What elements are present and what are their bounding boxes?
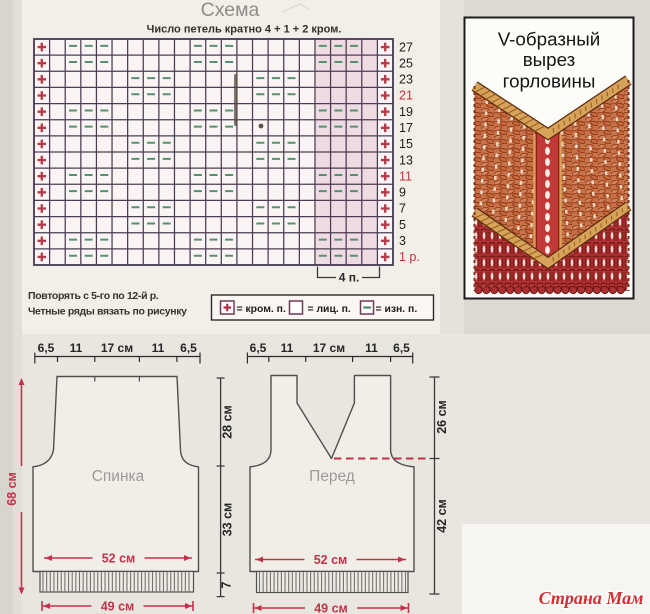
- svg-text:23: 23: [399, 73, 413, 87]
- svg-text:Четные ряды вязать по рисунку: Четные ряды вязать по рисунку: [28, 306, 187, 318]
- svg-text:15: 15: [399, 137, 413, 151]
- svg-text:вырез: вырез: [523, 49, 576, 70]
- svg-text:Страна Мам: Страна Мам: [539, 588, 644, 608]
- svg-text:= кром. п.: = кром. п.: [237, 304, 286, 315]
- svg-text:6,5: 6,5: [180, 341, 197, 355]
- svg-text:49 см: 49 см: [101, 600, 135, 614]
- svg-text:28 см: 28 см: [221, 405, 235, 439]
- svg-text:7: 7: [399, 202, 406, 216]
- svg-text:6,5: 6,5: [393, 341, 410, 355]
- svg-text:горловины: горловины: [503, 71, 596, 92]
- svg-text:17 см: 17 см: [313, 341, 345, 355]
- svg-text:9: 9: [399, 186, 406, 200]
- svg-text:42 см: 42 см: [435, 499, 449, 533]
- svg-text:Число петель кратно 4 + 1 + 2: Число петель кратно 4 + 1 + 2 кром.: [147, 24, 342, 36]
- svg-text:= лиц. п.: = лиц. п.: [308, 304, 351, 315]
- svg-text:19: 19: [399, 105, 413, 119]
- svg-text:3: 3: [399, 234, 406, 248]
- svg-text:4 п.: 4 п.: [339, 271, 360, 285]
- svg-text:11: 11: [365, 341, 378, 355]
- svg-text:49 см: 49 см: [314, 602, 348, 614]
- svg-text:11: 11: [399, 169, 412, 183]
- svg-text:Повторять с 5-го по 12-й р.: Повторять с 5-го по 12-й р.: [28, 290, 159, 302]
- svg-text:7: 7: [220, 581, 234, 588]
- svg-text:= изн. п.: = изн. п.: [376, 304, 418, 315]
- svg-text:17 см: 17 см: [101, 341, 133, 355]
- svg-text:11: 11: [70, 341, 83, 355]
- svg-text:Спинка: Спинка: [92, 468, 145, 485]
- svg-text:11: 11: [281, 341, 294, 355]
- svg-text:6,5: 6,5: [38, 341, 55, 355]
- svg-text:27: 27: [399, 40, 413, 54]
- svg-text:Схема: Схема: [201, 0, 260, 21]
- svg-text:33 см: 33 см: [221, 503, 235, 537]
- svg-text:5: 5: [399, 218, 406, 232]
- svg-text:6,5: 6,5: [250, 341, 267, 355]
- svg-text:25: 25: [399, 56, 413, 70]
- svg-text:52 см: 52 см: [314, 553, 348, 567]
- svg-text:26 см: 26 см: [435, 400, 449, 434]
- svg-text:1 р.: 1 р.: [399, 250, 420, 264]
- svg-text:17: 17: [399, 121, 413, 135]
- svg-text:11: 11: [152, 341, 165, 355]
- svg-text:V-образный: V-образный: [498, 29, 601, 50]
- svg-text:52 см: 52 см: [102, 552, 136, 566]
- svg-text:21: 21: [399, 89, 413, 103]
- svg-text:13: 13: [399, 153, 413, 167]
- svg-text:Перед: Перед: [309, 468, 355, 485]
- svg-text:68 см: 68 см: [5, 472, 19, 506]
